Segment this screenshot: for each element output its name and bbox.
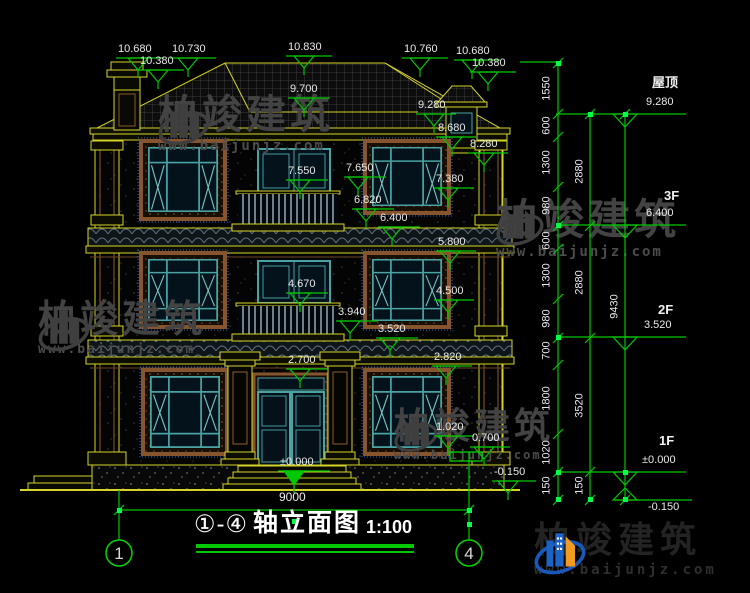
drawing-title: 轴立面图 bbox=[253, 511, 361, 536]
cad-elevation-canvas: 柏竣建筑 www.baijunjz.com 柏竣建筑 www.baijunjz.… bbox=[0, 0, 750, 593]
dimension-linework bbox=[0, 0, 750, 593]
title-axis-range: ①-④ bbox=[194, 513, 248, 537]
axis-bubble-1: 1 bbox=[109, 545, 129, 562]
grip-points bbox=[117, 61, 628, 527]
axis-bubble-4: 4 bbox=[459, 545, 479, 562]
drawing-scale: 1:100 bbox=[366, 518, 412, 536]
